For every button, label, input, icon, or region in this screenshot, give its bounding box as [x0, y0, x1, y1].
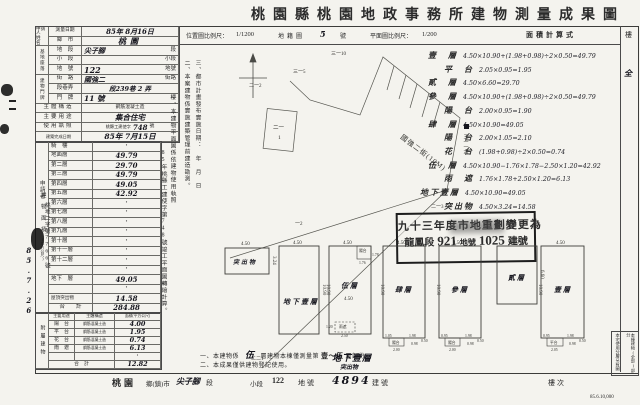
- plan-dim: 4.50: [556, 241, 565, 246]
- floor-row-value: ・: [93, 199, 161, 209]
- plan-dim: 3.24: [271, 256, 276, 265]
- plan-balcony-label: 陽台: [392, 340, 400, 345]
- floor-row-label: 第三層: [49, 171, 93, 181]
- floor-row-label: 第十層: [49, 237, 93, 247]
- usage-label: 主要用途: [36, 113, 82, 123]
- floor-row-value: ・: [93, 237, 161, 247]
- plan-dim: 2.00: [449, 348, 456, 352]
- door-number-value: 11 號: [84, 95, 105, 103]
- lot-number: 二一: [273, 125, 285, 131]
- lane-label: 段巷弄: [49, 84, 82, 94]
- calc-formula: 2.00×0.95=1.90: [479, 108, 532, 115]
- plan-dim: 0.98: [411, 342, 418, 346]
- street-unit: 街路: [165, 76, 176, 82]
- plan-dim: 4.50: [510, 241, 519, 246]
- cadastral-map-number: 5: [320, 29, 326, 39]
- parcel-value: 122: [84, 66, 101, 74]
- side-note-1a: 一、本建物平面圖係依建物使用執照: [169, 95, 175, 330]
- usage-value: 集合住宅: [82, 113, 179, 123]
- footer-subsection-unit: 小段: [250, 378, 263, 388]
- floor-row-label: 第二層: [49, 161, 93, 171]
- plan-dim: 1.76: [359, 261, 366, 265]
- calc-formula: 2.05×0.95=1.95: [479, 67, 532, 74]
- section-label: 地 段: [49, 46, 82, 56]
- street-value: 國強二: [84, 76, 105, 83]
- plan-dim: 0.50: [477, 339, 484, 343]
- area-calculations: 壹 層4.50×10.90+(1.98+0.98)÷2×0.50=49.79 平…: [428, 50, 624, 212]
- floor-row-value: ・: [93, 142, 161, 152]
- annex-table: 附屬建物 主要用途 主體構造 面積(平方公尺) 陽 台 鋼筋混凝土造 4.00 …: [35, 312, 162, 370]
- floor-row-value: ・: [93, 209, 161, 219]
- legend-box: 本棟建物(全部)部分 本宅使用分層另有圖: [611, 331, 639, 376]
- floor-area-table: 建物面積 (平方公尺) 騎 樓 ・ 地面層 49.79 第二層 29.70 第三…: [35, 141, 162, 314]
- plan-canopy-label: 雨遮: [339, 324, 347, 329]
- plan-dim: 4.50: [293, 241, 302, 246]
- plan-label: 貳層: [507, 273, 526, 282]
- plan-dim: 0.95: [441, 334, 448, 338]
- plan-dim: 0.50: [421, 339, 428, 343]
- calc-label: 貳 層: [428, 77, 458, 88]
- annex-row-use: 平 台: [49, 329, 75, 337]
- calc-formula: 4.50×3.24=14.58: [479, 204, 536, 211]
- north-arrow-icon: [239, 54, 267, 98]
- page-title: 桃園縣桃園地政事務所建物測量成果圖: [238, 4, 638, 24]
- annex-header-structure: 主體構造: [75, 313, 115, 321]
- print-code: 85.6.10,000: [590, 395, 614, 400]
- header-strip: 位置圖比例尺： 1/1200 地籍圖 5 號 平面圖比例尺： 1/200 面積計…: [178, 26, 620, 45]
- survey-date-value: 85年 8月16日: [82, 27, 179, 37]
- footer-floor-unit: 樓次: [548, 378, 566, 388]
- calc-label: 伍 層: [428, 160, 458, 171]
- calc-label: 平 台: [444, 64, 474, 75]
- calc-formula: 1.76×1.78+2.50×1.20=6.13: [479, 176, 570, 183]
- legend-line-2: 本宅使用分層另有圖: [615, 333, 619, 374]
- annex-header-use: 主要用途: [49, 313, 75, 321]
- section-unit: 段: [170, 48, 176, 54]
- subsection-unit: 小段: [165, 57, 176, 63]
- calc-formula: 4.50×10.90−1.76×1.78−2.50×1.20=42.92: [463, 163, 601, 170]
- lane-value: 段239巷 2 弄: [82, 84, 179, 94]
- plan-label: 參層: [451, 285, 469, 294]
- structure-value: 鋼筋混凝土造: [82, 104, 179, 114]
- lot-number: 一2: [295, 222, 303, 227]
- bottom-note-2: 二、本成果僅供建物登記使用。: [200, 360, 291, 369]
- stamp-line1: 九十三年度市地重劃變更為: [398, 216, 534, 234]
- annex-row-structure: 鋼筋混凝土造: [75, 329, 115, 337]
- calc-label: 突出物: [444, 201, 474, 212]
- lot-number: 1: [278, 135, 281, 141]
- floor-row-value: 49.79: [93, 171, 161, 181]
- annex-total-label: 合 計: [49, 361, 115, 369]
- annex-row-area: 4.00: [115, 321, 161, 329]
- calc-label: 地下壹層: [420, 187, 460, 198]
- plan-dim: 2.05: [551, 348, 558, 352]
- annex-row-use: 陽 台: [49, 321, 75, 329]
- floor-row-value: 14.58: [93, 294, 161, 304]
- floor-row-label: 第十二層: [49, 256, 93, 266]
- legend-line-1: 本棟建物(全部)部分: [626, 333, 635, 374]
- license-label: 使用執照: [36, 123, 82, 133]
- area-calc-title: 面積計算式: [526, 30, 576, 40]
- calc-label: 陽 台: [444, 105, 474, 116]
- plan-balcony-label: 陽台: [359, 248, 367, 253]
- side-note-1b: 85年桃縣工建使字第748號竣工平面圖轉繪計算。: [160, 150, 166, 350]
- floor-row-label: 第六層: [49, 199, 93, 209]
- floor-row-label: 第九層: [49, 228, 93, 238]
- location-scale-value: 1/1200: [236, 31, 254, 38]
- applicant-cell: 申請人 姓 名: [36, 27, 49, 46]
- door-number-label: 門 牌: [49, 94, 82, 104]
- building-info-table: 申請人 姓 名 測量日期 85年 8月16日 鄉 市 桃園 基地座落 地 段 尖…: [35, 26, 180, 143]
- calc-formula: 4.50×6.60=29.70: [463, 80, 520, 87]
- survey-date-label: 測量日期: [49, 27, 82, 37]
- plan-dim: 10.90: [379, 284, 384, 296]
- plan-dim: 1.98: [567, 334, 574, 338]
- footer-parcel-unit: 地號: [298, 378, 316, 388]
- annex-row-structure: [75, 353, 115, 361]
- plan-dim: 0.98: [569, 342, 576, 346]
- footer-section: 尖子腳: [176, 376, 200, 387]
- plan-dim: 4.50: [343, 241, 352, 246]
- floor-row-value: ・: [93, 247, 161, 257]
- plan-dim: 6.60: [539, 270, 544, 279]
- plan-terrace-label: 平台: [550, 340, 558, 345]
- location-scale-label: 位置圖比例尺：: [186, 31, 228, 40]
- plan-dim: 1.20: [326, 325, 333, 329]
- margin-mark: [9, 100, 16, 102]
- calc-label: 參 層: [428, 91, 458, 102]
- subsection-label: 小 段: [49, 56, 82, 66]
- annex-row-structure: 鋼筋混凝土造: [75, 321, 115, 329]
- calc-formula: 4.50×10.90+(1.98+0.98)÷2×0.50=49.79: [463, 94, 596, 101]
- floor-row-value: ・: [93, 218, 161, 228]
- floor-column-label: 樓: [625, 30, 632, 40]
- plan-dim: 4.50: [397, 241, 406, 246]
- lot-number: 二一2: [249, 83, 262, 89]
- floor-row-label: 第五層: [49, 190, 93, 200]
- floor-row-label: [49, 266, 93, 276]
- floor-row-value: 49.05: [93, 275, 161, 285]
- annex-row-area: ・: [115, 353, 161, 361]
- floor-row-value: 49.05: [93, 180, 161, 190]
- floor-row-label: 地面層: [49, 152, 93, 162]
- parcel-unit: 地號: [165, 67, 176, 73]
- floor-row-label: 地下 層: [49, 275, 93, 285]
- plan-dim: 4.50: [453, 241, 462, 246]
- calc-formula: 2.00×1.05=2.10: [479, 135, 532, 142]
- calc-formula: (1.98+0.98)÷2×0.50=0.74: [479, 149, 565, 156]
- plan-label: 突出物: [233, 258, 257, 266]
- margin-mark: [9, 108, 16, 110]
- calc-label: 陽 台: [444, 132, 474, 143]
- applicant-name-label: 姓 名: [36, 36, 48, 45]
- annex-row-use: [49, 353, 75, 361]
- annex-header-area: 面積(平方公尺): [115, 313, 161, 321]
- footer-building-number: 4894: [332, 374, 371, 387]
- plan-dim: 1.98: [409, 334, 416, 338]
- site-group-label: 基地座落: [36, 46, 49, 75]
- received-number: 桃地二字第7766號: [43, 202, 49, 306]
- plan-dim: 10.90: [325, 284, 330, 296]
- license-number: 748: [133, 124, 148, 131]
- floor-row-value: 49.79: [93, 152, 161, 162]
- annex-row-use: 雨 遮: [49, 345, 75, 353]
- annex-row-area: 6.13: [115, 345, 161, 353]
- calc-formula: 4.50×10.90=49.05: [465, 190, 526, 197]
- floor-row-label: 屋頂突出物: [49, 294, 93, 304]
- plan-dim: 1.78: [372, 253, 379, 257]
- plan-dim: 10.90: [435, 284, 440, 296]
- plan-scale-label: 平面圖比例尺：: [370, 31, 412, 40]
- plan-dim: 4.50: [241, 242, 250, 247]
- bottom-hand-note-roof: 突出物: [340, 362, 358, 371]
- annex-row-area: 1.95: [115, 329, 161, 337]
- lot-number: 三一10: [331, 51, 347, 57]
- plan-dim: 0.95: [543, 334, 550, 338]
- annex-row-structure: 鋼筋混凝土造: [75, 345, 115, 353]
- plan-label: 壹層: [554, 285, 572, 294]
- license-prefix: 桃縣工建使字: [106, 125, 131, 129]
- floor-row-label: 第四層: [49, 180, 93, 190]
- section-value: 尖子腳: [84, 47, 105, 54]
- calc-label: 花 台: [444, 146, 474, 157]
- annex-row-use: 花 台: [49, 337, 75, 345]
- floor-row-value: ・: [93, 285, 161, 295]
- lot-number: 三一5: [293, 69, 306, 75]
- plan-balcony-label: 陽台: [448, 340, 456, 345]
- floor-row-value: 29.70: [93, 161, 161, 171]
- margin-mark: [0, 124, 9, 134]
- footer-city: 桃園: [112, 376, 136, 389]
- stamp-smudge: [449, 220, 504, 233]
- annex-total-value: 12.82: [115, 361, 161, 369]
- parcel-label: 地 號: [49, 65, 82, 75]
- floor-row-label: 第七層: [49, 209, 93, 219]
- floor-row-label: 第十一層: [49, 247, 93, 257]
- cadastral-map-unit: 號: [340, 31, 346, 40]
- floor-row-value: ・: [93, 266, 161, 276]
- floor-row-label: 騎 樓: [49, 142, 93, 152]
- footer-parcel: 122: [272, 376, 284, 385]
- plan-dim: 10.90: [537, 284, 542, 296]
- floor-row-value: ・: [93, 256, 161, 266]
- floor-plans: 4.50 3.24 突出物 4.50 10.90 地下壹層 4.50 10.90…: [195, 238, 595, 352]
- plan-dim: 4.50: [344, 297, 353, 302]
- received-date: 85.7.26: [25, 246, 32, 306]
- annex-group-label: 附屬建物: [36, 313, 49, 369]
- district-label: 鄉 市: [49, 37, 82, 47]
- plan-dim: 2.00: [393, 348, 400, 352]
- footer-city-unit: 鄉(鎮)市: [146, 378, 170, 388]
- plan-dim: 0.50: [579, 339, 586, 343]
- floor-row-value: ・: [93, 228, 161, 238]
- license-unit: 號: [149, 125, 154, 130]
- street-label: 街 路: [49, 75, 82, 85]
- floor-row-label: [49, 285, 93, 295]
- footer-section-unit: 段: [206, 378, 213, 388]
- plan-scale-value: 1/200: [422, 31, 437, 38]
- survey-document: 桃園縣桃園地政事務所建物測量成果圖 樓 全 位置圖比例尺： 1/1200 地籍圖…: [0, 0, 640, 405]
- door-group-label: 建物門牌: [36, 75, 49, 104]
- floor-row-value: 42.92: [93, 190, 161, 200]
- cadastral-map-label: 地籍圖: [278, 31, 305, 40]
- plan-basement: [279, 246, 319, 334]
- floor-row-label: 第八層: [49, 218, 93, 228]
- calc-label: 肆 層: [428, 119, 458, 130]
- annex-row-structure: 鋼筋混凝土造: [75, 337, 115, 345]
- plan-dim: 0.98: [467, 342, 474, 346]
- district-value: 桃園: [82, 37, 179, 47]
- annex-row-area: 0.74: [115, 337, 161, 345]
- footer-building-unit: 建號: [372, 378, 390, 388]
- calc-formula: 4.50×10.90+(1.98+0.98)÷2×0.50=49.79: [463, 53, 596, 60]
- plan-label: 肆層: [395, 285, 413, 294]
- plan-label: 伍層: [341, 281, 359, 290]
- plan-dim: 2.50: [341, 334, 348, 338]
- floor-column-value: 全: [624, 68, 632, 79]
- calc-label: 雨 遮: [444, 173, 474, 184]
- calc-label: 壹 層: [428, 50, 458, 61]
- plan-dim: 1.98: [465, 334, 472, 338]
- structure-label: 主體構造: [36, 104, 82, 114]
- calc-formula: 4.50×10.90=49.05: [463, 122, 524, 129]
- plan-label: 地下壹層: [283, 297, 319, 306]
- margin-mark: [1, 84, 13, 96]
- plan-dim: 1.05: [385, 334, 392, 338]
- received-by-label: 申請者: [38, 180, 44, 200]
